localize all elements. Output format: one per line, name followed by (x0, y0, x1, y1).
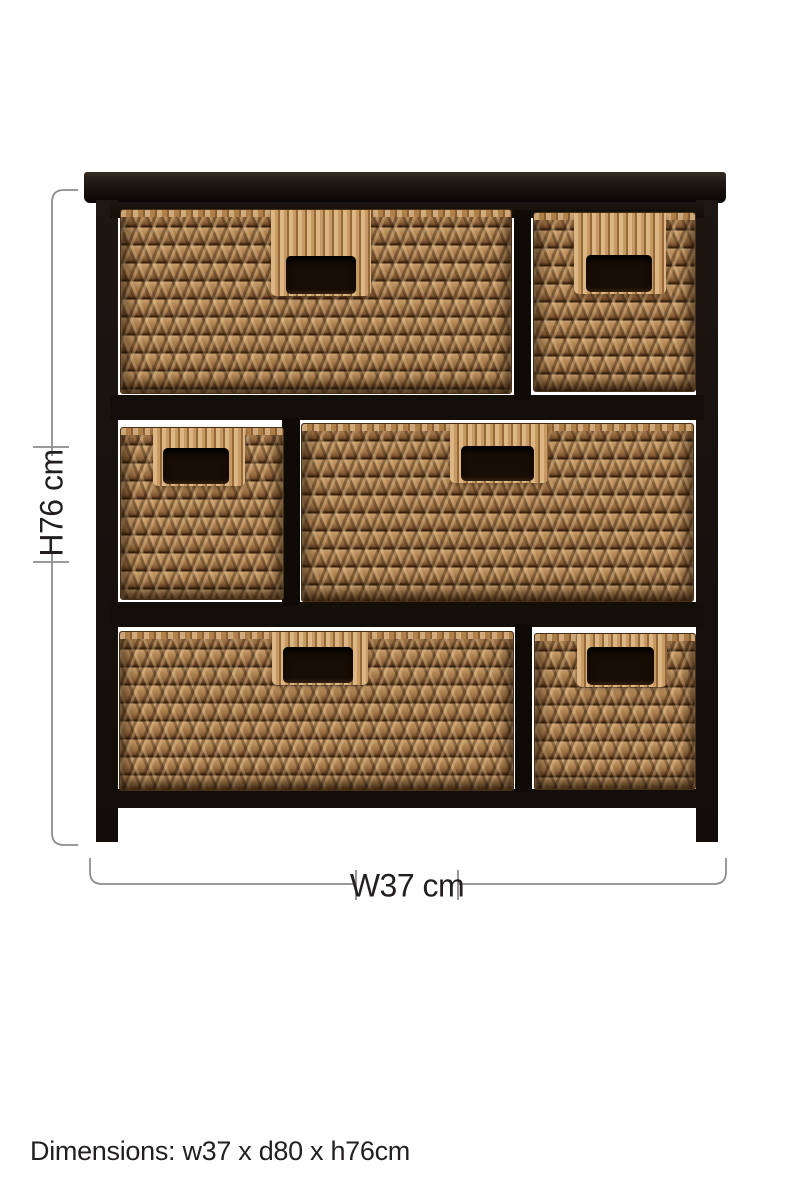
basket-row3-right-small (534, 633, 696, 790)
width-line-left (90, 858, 356, 884)
height-line-upper (52, 190, 78, 456)
basket-row1-left-large (120, 209, 512, 394)
cabinet-bottom-rail (110, 789, 704, 808)
cabinet-right-leg-post (696, 200, 718, 842)
basket-handle-cutout (286, 256, 356, 294)
dimensions-footer-text: Dimensions: w37 x d80 x h76cm (30, 1136, 410, 1167)
basket-handle-cutout (283, 647, 353, 683)
product-dimension-figure: H76 cm W37 cm Dimensions: w37 x d80 x h7… (0, 0, 793, 1199)
width-dimension-label: W37 cm (350, 868, 464, 905)
cabinet-shelf-rail-1 (110, 395, 704, 420)
basket-row1-right-small (533, 212, 696, 392)
cabinet-left-leg-post (96, 200, 118, 842)
cabinet-top-panel (84, 172, 726, 203)
basket-row2-left-small (120, 427, 284, 600)
basket-row2-right-large (301, 423, 694, 602)
row3-divider (515, 624, 532, 792)
basket-handle-cutout (461, 446, 534, 481)
width-line-right (458, 858, 726, 884)
row1-divider (514, 210, 531, 400)
basket-handle-cutout (587, 647, 654, 685)
cabinet-shelf-rail-2 (110, 602, 704, 627)
height-dimension-label: H76 cm (34, 449, 71, 556)
row2-divider (282, 418, 300, 606)
height-line-lower (52, 552, 78, 845)
basket-handle-cutout (586, 255, 652, 292)
basket-handle-cutout (163, 448, 229, 484)
basket-row3-left-large (119, 631, 514, 791)
